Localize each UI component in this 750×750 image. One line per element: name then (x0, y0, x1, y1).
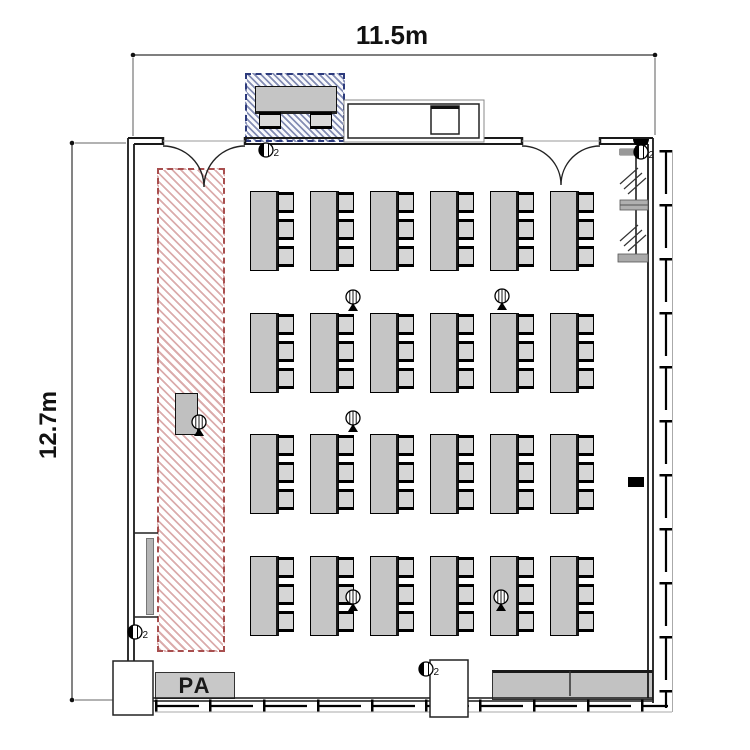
equipment-symbols: 2222 (128, 143, 655, 678)
mic-jack-icon: 2 (259, 143, 280, 159)
dim-end-dot (70, 141, 75, 146)
speaker-bracket (619, 149, 635, 155)
mic-jack-icon: 2 (634, 145, 655, 161)
dim-end-dot (70, 698, 75, 703)
bottom-wall (153, 698, 652, 701)
linework: 2222 (0, 0, 750, 750)
dimension-height-label: 12.7m (35, 375, 61, 475)
partition-bracket (618, 254, 648, 262)
dimension-width-label: 11.5m (342, 20, 442, 51)
mic-jack-count: 2 (274, 148, 280, 159)
mic-jack-icon: 2 (128, 625, 149, 641)
break-marks (620, 168, 646, 194)
right-double-door (522, 146, 600, 185)
wall-board-brackets (134, 533, 158, 617)
right-wall (648, 138, 653, 703)
mic-jack-count: 2 (143, 630, 149, 641)
floor-mic-icon (192, 415, 206, 436)
dim-end-dot (653, 53, 658, 58)
mic-jack-count: 2 (649, 150, 655, 161)
floorplan-canvas: PA (0, 0, 750, 750)
dim-end-dot (131, 53, 136, 58)
floor-mic-icon (346, 590, 360, 611)
floor-mic-icon (494, 590, 508, 611)
floor-mic-icon (346, 411, 360, 432)
break-marks (620, 225, 646, 251)
bottom-left-closet (113, 661, 153, 715)
counter-square (431, 106, 459, 134)
floor-mic-icon (495, 289, 509, 310)
left-wall (128, 138, 134, 661)
floor-mic-icon (346, 290, 360, 311)
wall-outlet-icon (628, 477, 644, 487)
dimension-lines (72, 55, 655, 700)
mic-jack-count: 2 (434, 667, 440, 678)
left-double-door (163, 146, 245, 187)
